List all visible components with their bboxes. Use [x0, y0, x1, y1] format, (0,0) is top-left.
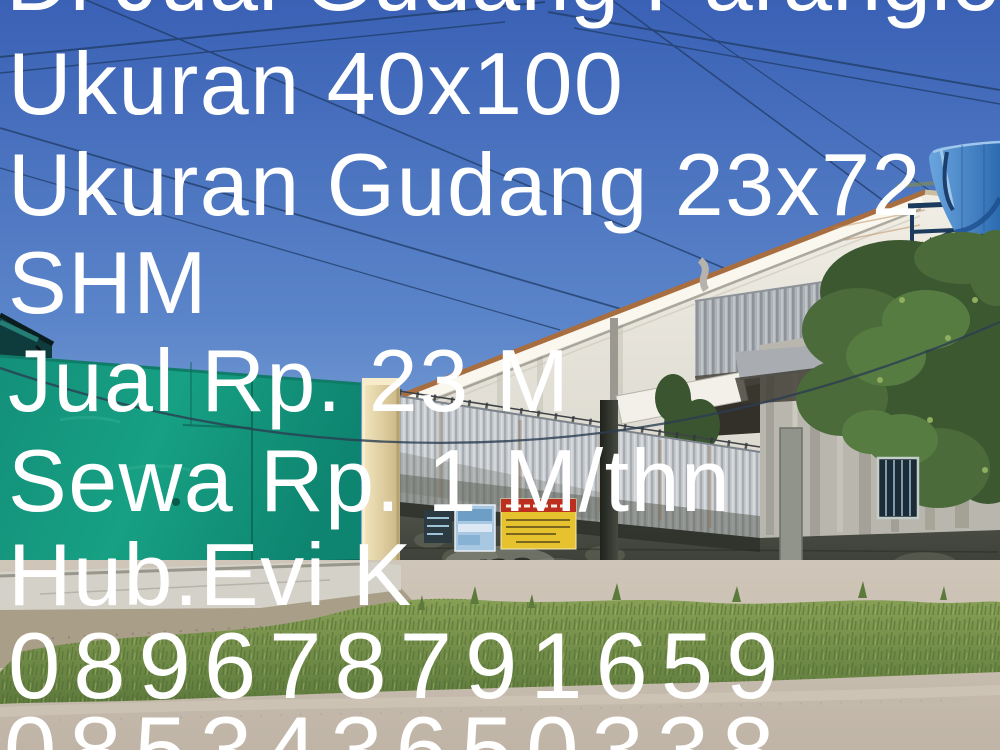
barred-window — [878, 458, 918, 518]
wall-downpipe — [610, 318, 618, 404]
overlay-line-certificate: SHM — [8, 237, 208, 329]
overlay-line-land-size: Ukuran 40x100 — [8, 38, 624, 130]
gutter-downpipe — [700, 260, 706, 290]
listing-photo: K23 — [0, 0, 1000, 750]
overlay-line-contact-name: Hub.Evi K — [8, 529, 413, 621]
overlay-line-title: Di Jual Gudang Parangloe — [6, 0, 1000, 26]
overlay-line-phone-2: 085343650338 — [4, 701, 787, 750]
overlay-line-building-size: Ukuran Gudang 23x72 — [8, 139, 922, 231]
overlay-line-sale-price: Jual Rp. 23 M — [8, 335, 570, 427]
overlay-line-rent-price: Sewa Rp. 1 M/thn — [8, 435, 731, 527]
